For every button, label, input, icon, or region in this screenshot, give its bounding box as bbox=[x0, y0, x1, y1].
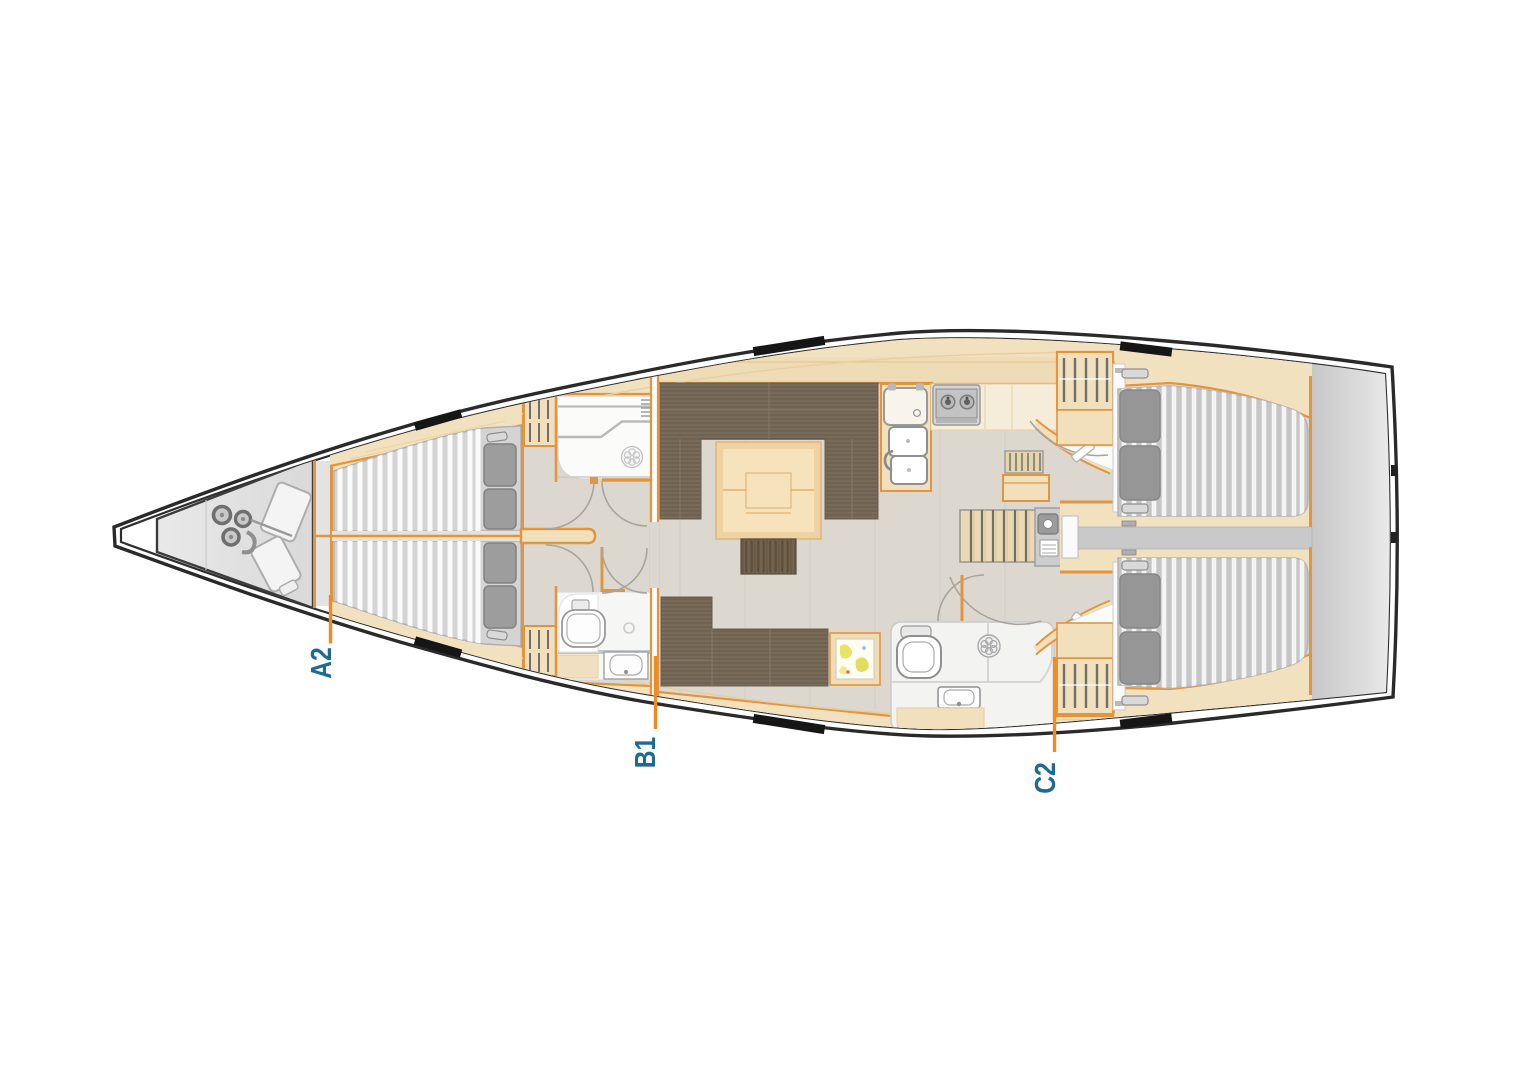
svg-text:B1: B1 bbox=[629, 737, 661, 769]
svg-text:C2: C2 bbox=[1029, 762, 1061, 794]
svg-text:A2: A2 bbox=[305, 647, 337, 679]
